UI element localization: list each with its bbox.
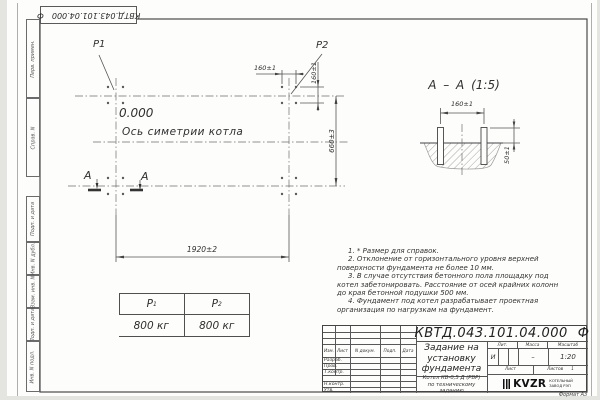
scale-value: 1:20 [548, 349, 588, 365]
role-nkontr: Н.контр. [324, 382, 345, 387]
company-cell: KVZR КОТЕЛЬНЫЙ ЗАВОД РЭП [488, 374, 588, 393]
role-razrab: Разраб. [324, 358, 342, 363]
lit-value: И [488, 349, 498, 365]
drawing-title: Задание на установку фундамента [416, 342, 488, 377]
note-3: 3. В случае отсутствия бетонного пола пл… [337, 272, 563, 297]
dim-depth-660: 660±3 [326, 119, 338, 163]
load-table-header-p2: Р2 [185, 293, 251, 315]
product-name: Котел КВ-0,5 Д (РВР) по техническому зад… [416, 377, 488, 393]
margin-box-perv-primen: Перв. примен. [26, 19, 40, 98]
note-4: 4. Фундамент под котел разрабатывает про… [337, 297, 563, 314]
col-header-izm: Изм. [323, 345, 335, 357]
col-header-date: Дата [400, 345, 416, 357]
role-utv: Утв. [324, 388, 334, 393]
plan-view-lines [68, 54, 348, 262]
load-table-value-p1: 800 кг [119, 315, 185, 337]
anchor-bolt-points [107, 86, 297, 195]
stamp-doc-number: КВТД.043.101.04.000 [52, 11, 140, 20]
note-2: 2. Отклонение от горизонтального уровня … [337, 255, 563, 272]
margin-box-sprav-n: Справ. N [26, 98, 40, 177]
load-table-value-p2: 800 кг [185, 315, 251, 337]
dim-section-pitch: 160±1 [442, 101, 482, 108]
margin-box-inv-podl: Инв. N подл. [26, 341, 40, 392]
technical-notes: 1. * Размер для справок. 2. Отклонение о… [337, 247, 563, 314]
role-prov: Пров. [324, 364, 337, 369]
load-point-p1-label: P1 [93, 40, 105, 50]
margin-label: Подп. и дата [30, 202, 36, 236]
sheets-cell: Листов 1 [533, 365, 588, 374]
margin-label: Перв. примен. [30, 40, 36, 78]
elevation-mark: 0.000 [119, 107, 153, 119]
top-stamp-box: КВТД.043.101.04.000 Ф [40, 6, 137, 24]
col-header-sign: Подп. [380, 345, 400, 357]
format-label: Формат А3 [552, 393, 594, 398]
company-logo-icon [503, 379, 510, 389]
margin-label: Справ. N [30, 126, 36, 149]
margin-box-podp-data-2: Подп. и дата [26, 308, 40, 341]
section-mark-a-right: А [141, 171, 149, 182]
sheets-value: 1 [571, 367, 574, 372]
company-name: КОТЕЛЬНЫЙ ЗАВОД РЭП [549, 379, 573, 388]
mass-value: – [518, 349, 548, 365]
margin-label: Взам. инв. N [30, 275, 36, 308]
col-header-doc: N докум. [350, 345, 380, 357]
margin-box-vzam-inv: Взам. инв. N [26, 275, 40, 308]
margin-box-podp-data-1: Подп. и дата [26, 196, 40, 242]
col-header-list: Лист [335, 345, 350, 357]
note-1: 1. * Размер для справок. [337, 247, 563, 255]
lit-label: Лит. [488, 342, 518, 349]
section-title: А – А (1:5) [428, 79, 500, 91]
section-mark-a-left: А [84, 170, 92, 181]
dim-bolt-pitch-y: 160±1 [309, 56, 319, 90]
dim-bolt-pitch-x: 160±1 [250, 65, 280, 72]
title-block: Изм. Лист N докум. Подп. Дата Разраб. Пр… [322, 325, 587, 392]
role-tkontr: Т.контр. [324, 370, 344, 375]
scale-label: Масштаб [548, 342, 588, 349]
margin-label: Инв. N дубл. [30, 242, 36, 275]
boiler-axis-label: Ось симетрии котла [122, 127, 243, 138]
dim-section-height: 50±1 [502, 138, 512, 172]
company-logo-text: KVZR [513, 378, 546, 390]
margin-label: Инв. N подл. [30, 350, 36, 383]
mass-label: Масса [518, 342, 548, 349]
margin-box-inv-dubl: Инв. N дубл. [26, 242, 40, 275]
sheet-label: Лист [488, 365, 533, 374]
dim-width-1920: 1920±2 [164, 246, 240, 254]
load-point-p2-label: P2 [316, 41, 328, 51]
drawing-sheet: КВТД.043.101.04.000 Ф Перв. примен. Спра… [0, 0, 600, 400]
titleblock-doc-number: КВТД.043.101.04.000 Ф [416, 326, 588, 342]
margin-label: Подп. и дата [30, 307, 36, 341]
load-table: Р1 Р2 800 кг 800 кг [119, 293, 250, 337]
load-table-header-p1: Р1 [119, 293, 185, 315]
